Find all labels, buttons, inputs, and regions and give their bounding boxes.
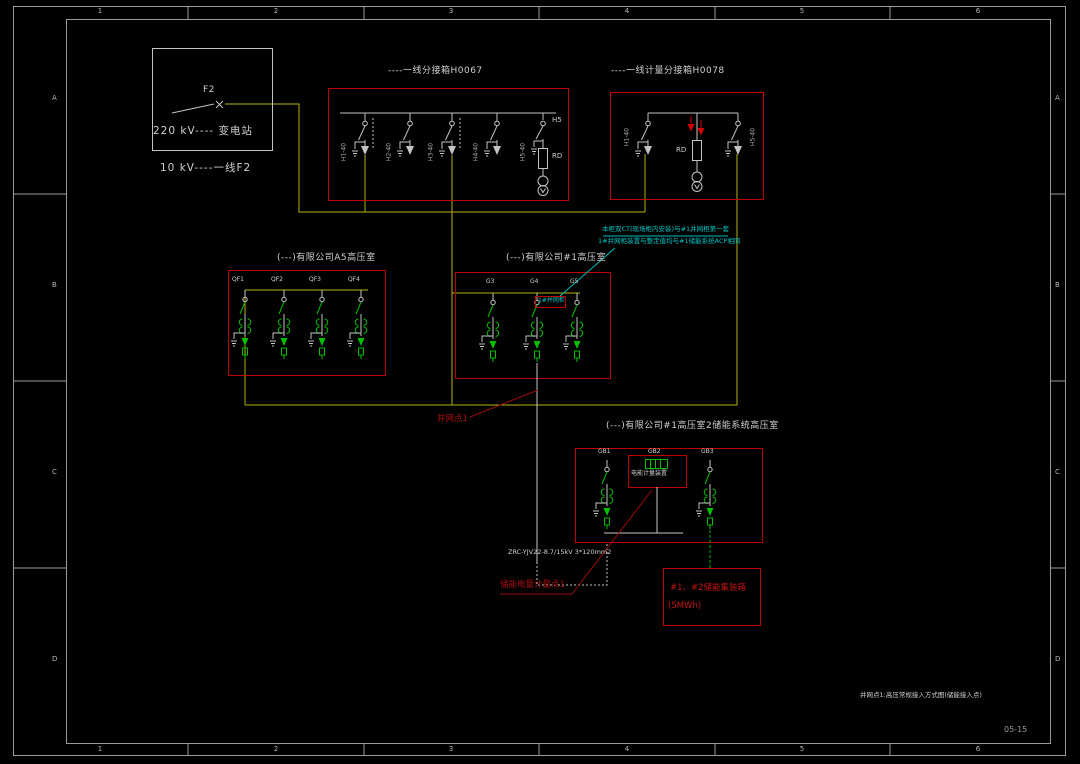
schematic-canvas <box>0 0 1080 764</box>
zone-top-6: 6 <box>976 7 980 15</box>
metering-point-label: 储能电量计量点1 <box>500 581 565 591</box>
cyan-note-line1: 本柜双CT(现场柜内安装)与#1并网柜第一套 <box>602 226 729 233</box>
storage-bay2-label: GB2 <box>648 449 661 456</box>
zone-top-2: 2 <box>274 7 278 15</box>
storage-room-title: (---)有限公司#1高压室2储能系统高压室 <box>606 421 779 431</box>
h0078-left-bay-label: H1-40 <box>624 128 631 146</box>
storage-container-line1: #1、#2储能集装箱 <box>670 584 746 594</box>
zone-left-c: C <box>52 468 57 476</box>
zone-right-d: D <box>1055 655 1060 663</box>
h0067-title: ----一线分接箱H0067 <box>388 66 483 76</box>
zone-bottom-3: 3 <box>449 745 453 753</box>
a5-bay4-label: QF4 <box>348 277 360 284</box>
h0078-title: ----一线计量分接箱H0078 <box>611 66 725 76</box>
storage-bay1-label: GB1 <box>598 449 611 456</box>
meter-device-symbol <box>646 460 668 469</box>
zone-right-b: B <box>1055 281 1060 289</box>
h0078-box <box>611 93 764 200</box>
room1-bay1-label: G3 <box>486 279 494 286</box>
a5-bay3-label: QF3 <box>309 277 321 284</box>
ct-red-arrows <box>688 116 705 136</box>
room-1-title: (---)有限公司#1高压室 <box>506 253 606 263</box>
a5-bay1-label: QF1 <box>232 277 244 284</box>
grid-cabinet-label: 1#并网柜 <box>538 298 565 305</box>
zone-bottom-4: 4 <box>625 745 629 753</box>
breaker-f2-symbol <box>172 101 223 113</box>
h0067-bay4-label: H4-40 <box>473 143 480 161</box>
h0067-bay5-label: H5-40 <box>520 143 527 161</box>
zone-right-a: A <box>1055 94 1060 102</box>
room1-bay3-label: G5 <box>570 279 578 286</box>
grid-point-label: 并网点1 <box>437 415 468 425</box>
zone-left-a: A <box>52 94 57 102</box>
h0078-right-bay-label: H5-40 <box>750 128 757 146</box>
cable-spec-label: ZRC-YJV22-8.7/15kV 3*120mm2 <box>508 549 611 556</box>
room-a5-box <box>229 271 386 376</box>
feeder-label: 10 kV----一线F2 <box>160 162 251 174</box>
cyan-note-line2: 1#并网柜装置与整定值均与#1储能系统ACP相同 <box>598 238 740 245</box>
room1-bay2-label: G4 <box>530 279 538 286</box>
h0067-bay2-label: H2-40 <box>386 143 393 161</box>
zone-top-5: 5 <box>800 7 804 15</box>
room-a5-title: (---)有限公司A5高压室 <box>277 253 376 263</box>
zone-left-d: D <box>52 655 57 663</box>
zone-left-b: B <box>52 281 57 289</box>
h0067-bay3-label: H3-40 <box>428 143 435 161</box>
zone-bottom-6: 6 <box>976 745 980 753</box>
h0067-bay1-label: H1-40 <box>341 143 348 161</box>
zone-bottom-2: 2 <box>274 745 278 753</box>
h0067-fuse-label: RD <box>552 152 562 160</box>
storage-container-box <box>664 569 761 626</box>
room-1-box <box>456 273 611 586</box>
h0067-fuse-meter-branch <box>531 113 548 196</box>
border-frame <box>14 7 1066 756</box>
storage-meter-label: 电能计量装置 <box>631 471 667 478</box>
zone-right-c: C <box>1055 468 1060 476</box>
storage-container-line2: (5MWh) <box>668 602 701 612</box>
a5-bay2-label: QF2 <box>271 277 283 284</box>
zone-bottom-1: 1 <box>98 745 102 753</box>
zone-top-1: 1 <box>98 7 102 15</box>
storage-bay3-label: GB3 <box>701 449 714 456</box>
cad-drawing-page: 1 2 3 4 5 6 1 2 3 4 5 6 A B C D A B C D … <box>0 0 1080 764</box>
sheet-number: 05-15 <box>1004 725 1027 734</box>
breaker-f2-label: F2 <box>203 85 215 95</box>
zone-top-3: 3 <box>449 7 453 15</box>
h0067-switch-label: H5 <box>552 116 562 124</box>
zone-top-4: 4 <box>625 7 629 15</box>
zone-bottom-5: 5 <box>800 745 804 753</box>
drawing-note: 并网点1:高压常规接入方式图(储能接入点) <box>860 692 982 699</box>
h0078-fuse-label: RD <box>676 146 686 154</box>
substation-label: 220 kV---- 变电站 <box>153 125 253 137</box>
